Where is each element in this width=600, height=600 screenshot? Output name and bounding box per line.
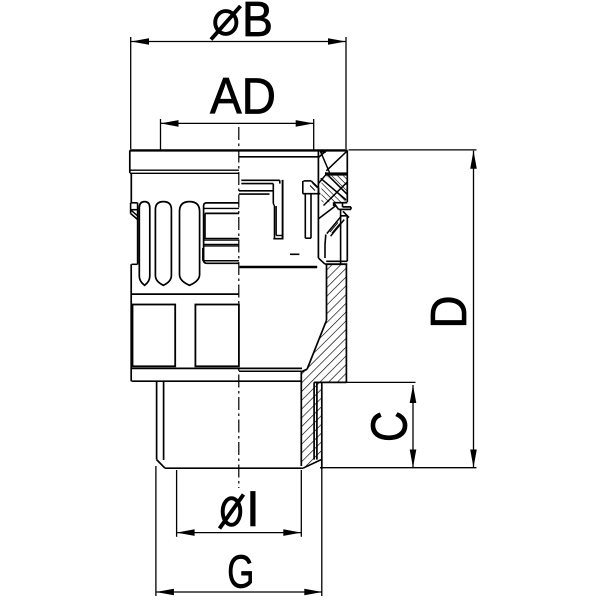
svg-text:G: G xyxy=(227,546,254,598)
svg-text:D: D xyxy=(420,296,477,329)
svg-text:B: B xyxy=(242,0,273,47)
svg-text:C: C xyxy=(361,411,418,442)
svg-text:AD: AD xyxy=(210,68,276,125)
